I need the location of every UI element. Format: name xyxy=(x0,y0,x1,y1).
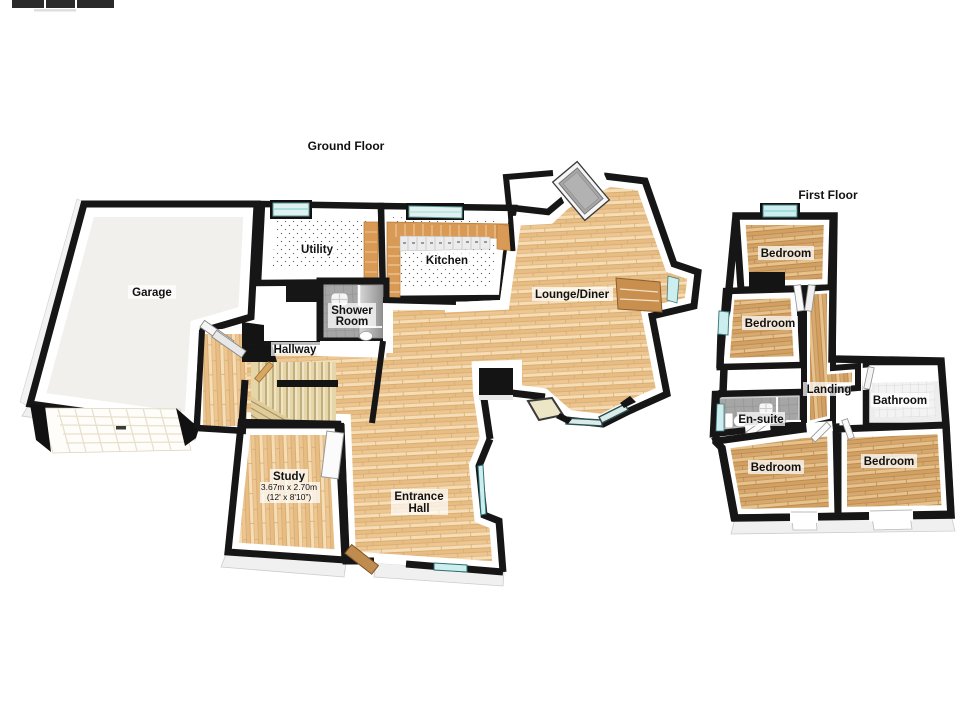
svg-text:Garage: Garage xyxy=(132,287,172,299)
svg-text:(12' x 8'10”): (12' x 8'10”) xyxy=(267,492,312,502)
svg-text:Hallway: Hallway xyxy=(274,344,317,356)
svg-text:Landing: Landing xyxy=(807,384,852,396)
svg-text:Lounge/Diner: Lounge/Diner xyxy=(535,289,610,301)
svg-text:First Floor: First Floor xyxy=(798,188,858,202)
svg-text:Hall: Hall xyxy=(408,503,429,515)
svg-text:Bedroom: Bedroom xyxy=(761,248,811,260)
svg-text:Ground Floor: Ground Floor xyxy=(308,139,385,153)
svg-text:Room: Room xyxy=(336,316,369,328)
svg-text:Kitchen: Kitchen xyxy=(426,255,468,267)
svg-text:Bedroom: Bedroom xyxy=(745,318,795,330)
svg-text:Bedroom: Bedroom xyxy=(751,462,801,474)
svg-text:En-suite: En-suite xyxy=(738,414,783,426)
svg-text:3.67m x 2.70m: 3.67m x 2.70m xyxy=(261,482,317,492)
svg-text:Entrance: Entrance xyxy=(394,491,443,503)
svg-text:Bathroom: Bathroom xyxy=(873,395,927,407)
svg-text:Bedroom: Bedroom xyxy=(864,456,914,468)
svg-text:Utility: Utility xyxy=(301,244,334,256)
